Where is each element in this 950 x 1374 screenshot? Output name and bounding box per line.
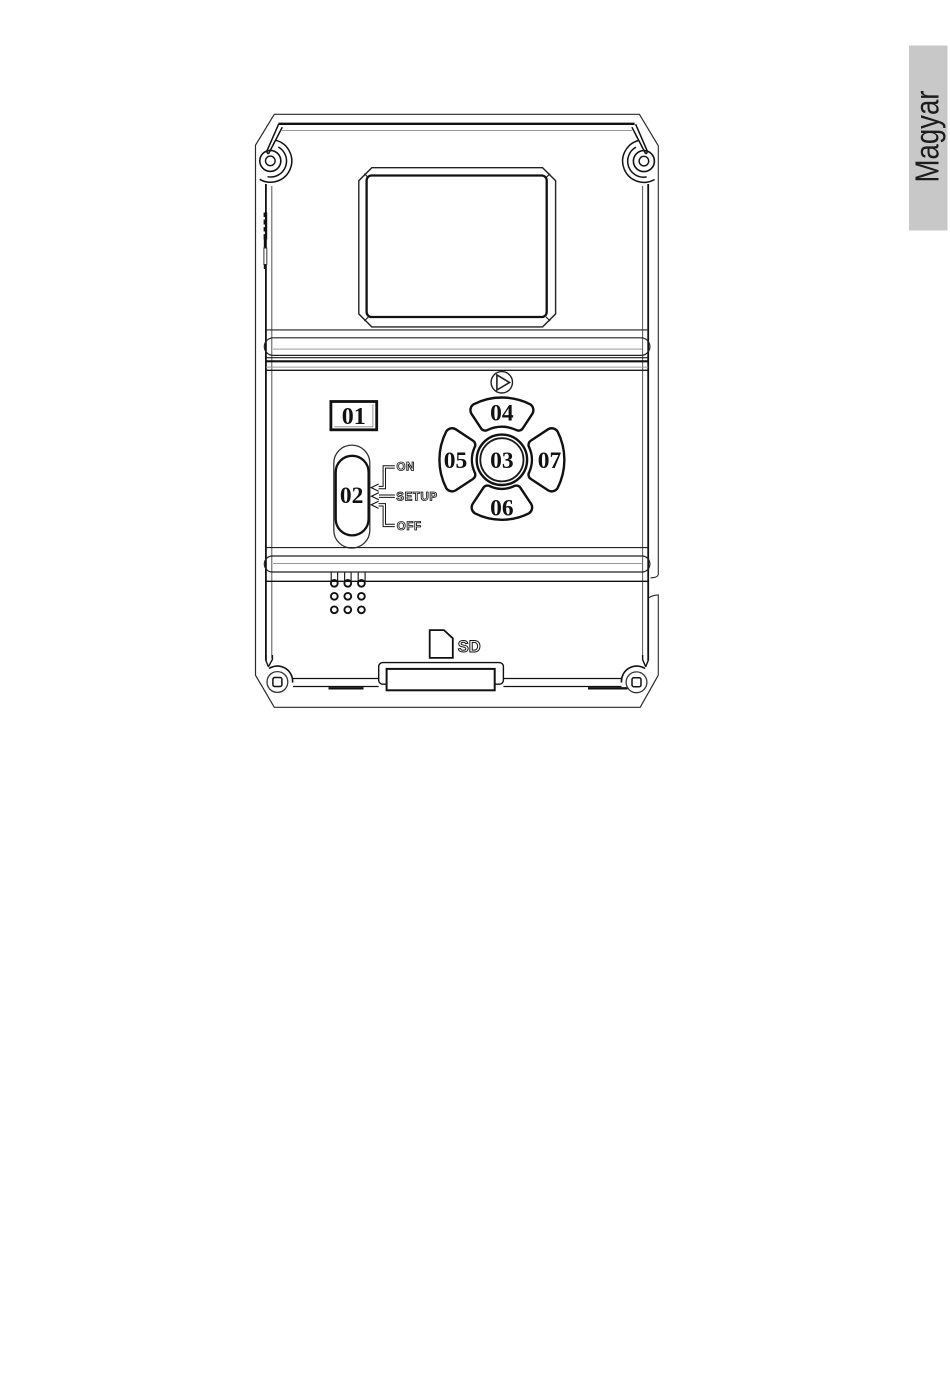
svg-text:SETUP: SETUP <box>396 491 437 503</box>
svg-text:ON: ON <box>397 462 415 474</box>
svg-text:OFF: OFF <box>397 521 422 533</box>
svg-text:01: 01 <box>342 404 366 430</box>
svg-text:07: 07 <box>538 448 562 474</box>
svg-text:SD: SD <box>458 638 481 656</box>
svg-text:03: 03 <box>490 448 514 474</box>
svg-text:06: 06 <box>490 496 514 522</box>
svg-text:Magyar: Magyar <box>909 90 946 182</box>
svg-text:02: 02 <box>340 483 364 509</box>
svg-text:05: 05 <box>444 448 468 474</box>
svg-text:04: 04 <box>490 401 514 427</box>
